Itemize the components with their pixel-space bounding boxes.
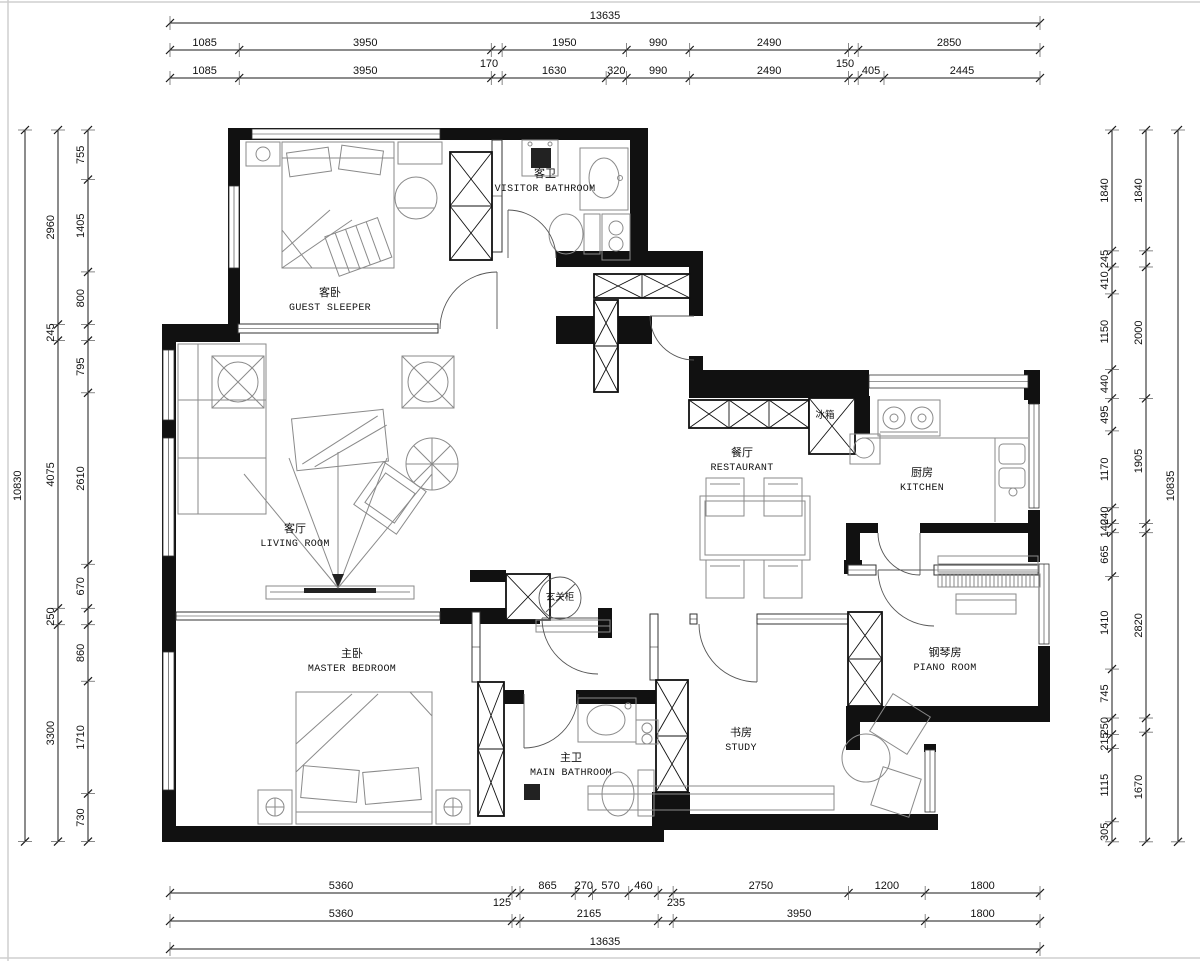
master-bedroom-zh: 主卧 [341,647,363,660]
guest-sleeper-en: GUEST SLEEPER [289,303,371,314]
living-room-zh: 客厅 [284,521,306,535]
svg-text:305: 305 [1099,823,1111,841]
study-zh: 书房 [730,726,752,739]
svg-text:800: 800 [75,289,87,307]
svg-text:1150: 1150 [1099,320,1111,344]
kitchen-zh: 厨房 [911,466,933,479]
svg-text:795: 795 [75,358,87,376]
room-label-study: 书房 STUDY [725,726,757,754]
svg-text:745: 745 [1099,684,1111,702]
svg-text:320: 320 [607,65,625,77]
svg-text:1950: 1950 [552,37,576,49]
svg-text:1085: 1085 [192,65,216,77]
svg-text:2490: 2490 [757,65,781,77]
svg-text:10830: 10830 [12,470,24,501]
svg-text:2445: 2445 [950,65,974,77]
fridge-label: 冰箱 [815,409,834,421]
svg-text:1840: 1840 [1099,178,1111,202]
svg-text:1200: 1200 [875,880,899,892]
svg-text:1115: 1115 [1099,774,1111,797]
svg-text:1840: 1840 [1133,178,1145,202]
svg-text:460: 460 [634,880,652,892]
dim-left-mid: 296024540752503300 [45,126,65,846]
svg-text:2960: 2960 [45,215,57,239]
svg-text:405: 405 [862,65,880,77]
svg-text:1410: 1410 [1099,611,1111,635]
svg-text:1405: 1405 [75,214,87,238]
svg-text:1800: 1800 [970,880,994,892]
svg-text:3950: 3950 [787,908,811,920]
svg-text:5360: 5360 [329,908,353,920]
piano-room-en: PIANO ROOM [913,663,976,674]
restaurant-en: RESTAURANT [710,463,773,474]
svg-text:2820: 2820 [1133,613,1145,637]
dimensions-layer: 1363510853950195099024902850108539501630… [12,10,1185,956]
svg-text:1630: 1630 [542,65,566,77]
svg-text:4075: 4075 [45,462,57,486]
svg-text:2000: 2000 [1133,320,1145,344]
dim-right-inner: 1840245410115044049511702401406651410745… [1099,126,1119,846]
dim-top-total: 13635 [166,10,1044,30]
svg-text:670: 670 [75,577,87,595]
living-room-en: LIVING ROOM [260,539,329,550]
dim-left-total: 10830 [12,126,32,846]
master-bedroom-en: MASTER BEDROOM [308,664,396,675]
dim-bottom-total: 13635 [166,936,1044,956]
main-bathroom-en: MAIN BATHROOM [530,768,612,779]
svg-text:1170: 1170 [1099,458,1111,482]
svg-text:440: 440 [1099,375,1111,393]
room-label-kitchen: 厨房 KITCHEN [900,466,944,494]
svg-text:1670: 1670 [1133,775,1145,799]
svg-text:1085: 1085 [192,37,216,49]
dim-label-150: 150 [836,58,854,70]
svg-text:215: 215 [1099,732,1111,750]
visitor-bathroom-zh: 客卫 [534,166,556,180]
svg-text:1905: 1905 [1133,449,1145,473]
svg-text:3950: 3950 [353,37,377,49]
dim-bottom-row1: 5360865270570460275012001800 [166,880,1044,900]
svg-text:2750: 2750 [749,880,773,892]
study-en: STUDY [725,743,757,754]
room-label-main-bathroom: 主卫 MAIN BATHROOM [530,751,612,779]
dim-label-235: 235 [667,897,685,909]
room-label-master-bedroom: 主卧 MASTER BEDROOM [308,647,396,675]
entry-cabinet-label: 玄关柜 [546,591,575,603]
svg-text:2850: 2850 [937,37,961,49]
svg-text:990: 990 [649,65,667,77]
svg-text:10835: 10835 [1165,471,1177,502]
dim-bottom-row2: 5360216539501800 [166,908,1044,928]
svg-text:3950: 3950 [353,65,377,77]
dim-label-125: 125 [493,897,511,909]
svg-text:1710: 1710 [75,725,87,749]
room-label-guest-sleeper: 客卧 GUEST SLEEPER [289,285,371,314]
svg-text:755: 755 [75,146,87,164]
svg-text:13635: 13635 [590,10,621,22]
svg-text:2490: 2490 [757,37,781,49]
svg-text:2610: 2610 [75,466,87,490]
floor-plan-drawing: 1363510853950195099024902850108539501630… [0,0,1200,961]
svg-text:865: 865 [538,880,556,892]
dim-top-row2: 10853950195099024902850 [166,37,1044,57]
svg-text:250: 250 [45,607,57,625]
svg-text:570: 570 [601,880,619,892]
kitchen-en: KITCHEN [900,483,944,494]
svg-text:13635: 13635 [590,936,621,948]
svg-text:270: 270 [575,880,593,892]
visitor-bathroom-en: VISITOR BATHROOM [495,184,596,195]
svg-text:2165: 2165 [577,908,601,920]
svg-text:245: 245 [45,323,57,341]
main-bathroom-zh: 主卫 [560,751,582,764]
svg-text:245: 245 [1099,250,1111,268]
dim-label-170: 170 [480,58,498,70]
restaurant-zh: 餐厅 [731,445,753,459]
svg-text:730: 730 [75,808,87,826]
room-label-restaurant: 餐厅 RESTAURANT [710,445,773,474]
floor-plan-page: 1363510853950195099024902850108539501630… [0,0,1200,961]
guest-sleeper-zh: 客卧 [319,285,341,299]
svg-text:1800: 1800 [970,908,994,920]
svg-text:3300: 3300 [45,721,57,745]
piano-room-zh: 钢琴房 [929,646,962,659]
room-label-piano-room: 钢琴房 PIANO ROOM [913,646,976,674]
dim-top-row3: 10853950163032099024904052445 [166,65,1044,85]
svg-text:410: 410 [1099,271,1111,289]
dim-right-total: 10835 [1165,126,1185,846]
svg-text:5360: 5360 [329,880,353,892]
dim-left-inner: 755140580079526106708601710730 [75,126,95,846]
svg-text:665: 665 [1099,545,1111,563]
svg-text:990: 990 [649,37,667,49]
svg-text:140: 140 [1099,519,1111,537]
dim-right-mid: 18402000190528201670 [1133,126,1153,846]
svg-text:860: 860 [75,644,87,662]
svg-text:495: 495 [1099,405,1111,423]
